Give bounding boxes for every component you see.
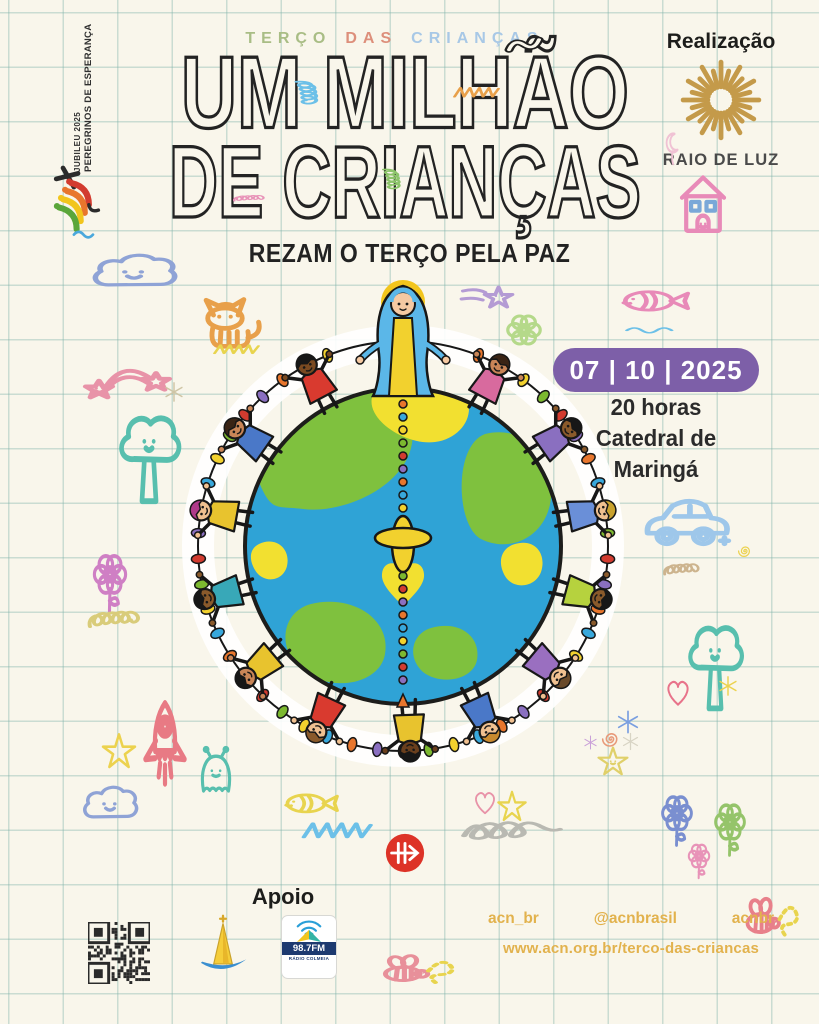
car-doodle [640,483,736,559]
coil-doodle [662,550,708,584]
tube-doodle [503,30,553,62]
spiral-doodle [735,541,755,561]
coil-doodle [278,80,344,110]
acn-logo [384,832,426,874]
coil-doodle [232,188,272,206]
asterisk-doodle [716,674,740,698]
cloud-doodle [80,778,140,832]
social-block: acn_br @acnbrasil acnbr www.acn.org.br/t… [488,910,774,957]
cathedral-logo [194,914,252,978]
globe-children-illustration [163,276,647,796]
radio-station-name: RÁDIO COLMEIA [289,956,329,961]
scribble-doodle [452,80,502,104]
flower-doodle [682,840,716,880]
squiggleloop-doodle [460,810,564,856]
radio-frequency: 98.7FM [282,942,336,955]
coil-doodle [86,592,152,640]
jubilee-logo [44,160,112,244]
qr-code [88,922,150,984]
campaign-url: www.acn.org.br/terco-das-criancas [488,940,774,957]
moon-doodle [656,128,686,170]
rainbow-doodle [80,350,175,414]
social-handle: acn_br [488,910,539,928]
apoio-label: Apoio [238,884,328,910]
coil-doodle [369,168,421,194]
social-handle: @acnbrasil [594,910,677,928]
radio-antenna-icon [282,916,336,942]
social-handle: acnbr [732,910,774,928]
realizacao-label: Realização [640,30,802,54]
heart-doodle [662,674,694,710]
bee-doodle [370,946,456,994]
poster: JUBILEU 2025 PEREGRINOS DE ESPERANÇA TER… [0,0,819,1024]
scribble-doodle [300,812,376,848]
raio-de-luz-sunburst-logo [677,56,765,144]
house-doodle [668,166,738,238]
main-title: UM MILHÃO DE CRIANÇAS [160,50,650,250]
radio-logo: 98.7FM RÁDIO COLMEIA [281,915,337,979]
